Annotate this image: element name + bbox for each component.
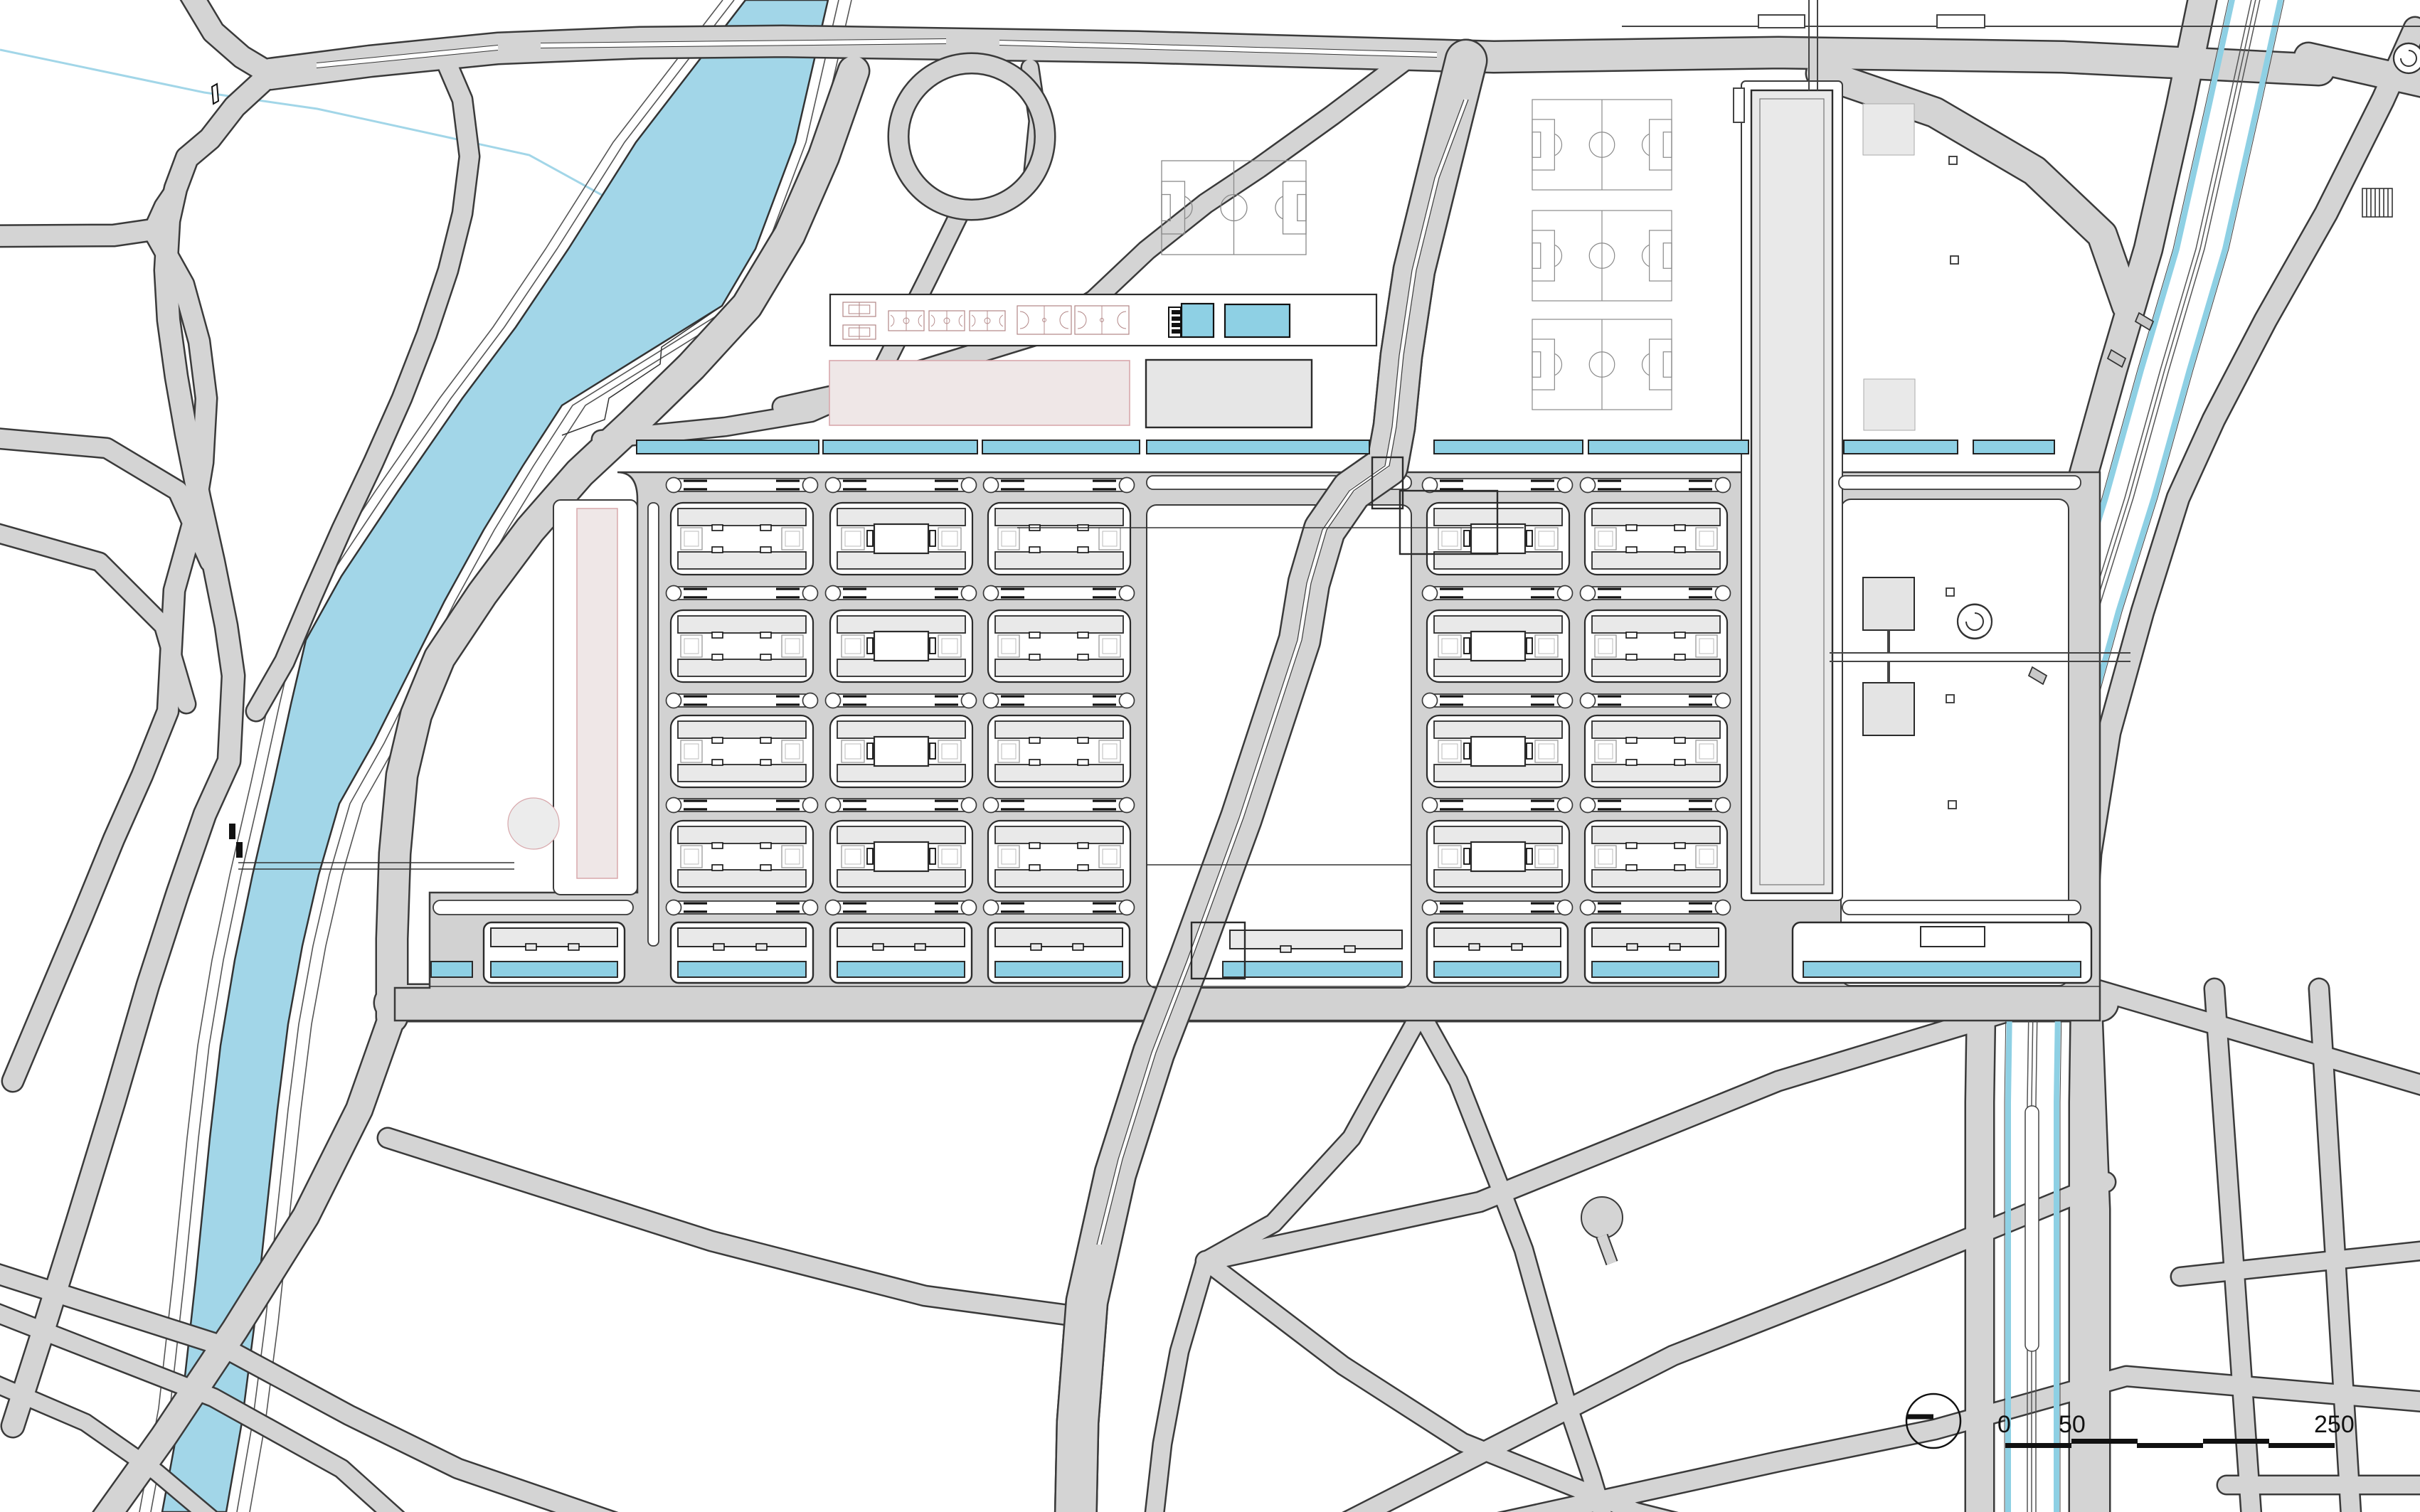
svg-text:250: 250 (2314, 1411, 2355, 1438)
svg-text:50: 50 (2059, 1411, 2086, 1438)
svg-text:0: 0 (1997, 1411, 2011, 1438)
